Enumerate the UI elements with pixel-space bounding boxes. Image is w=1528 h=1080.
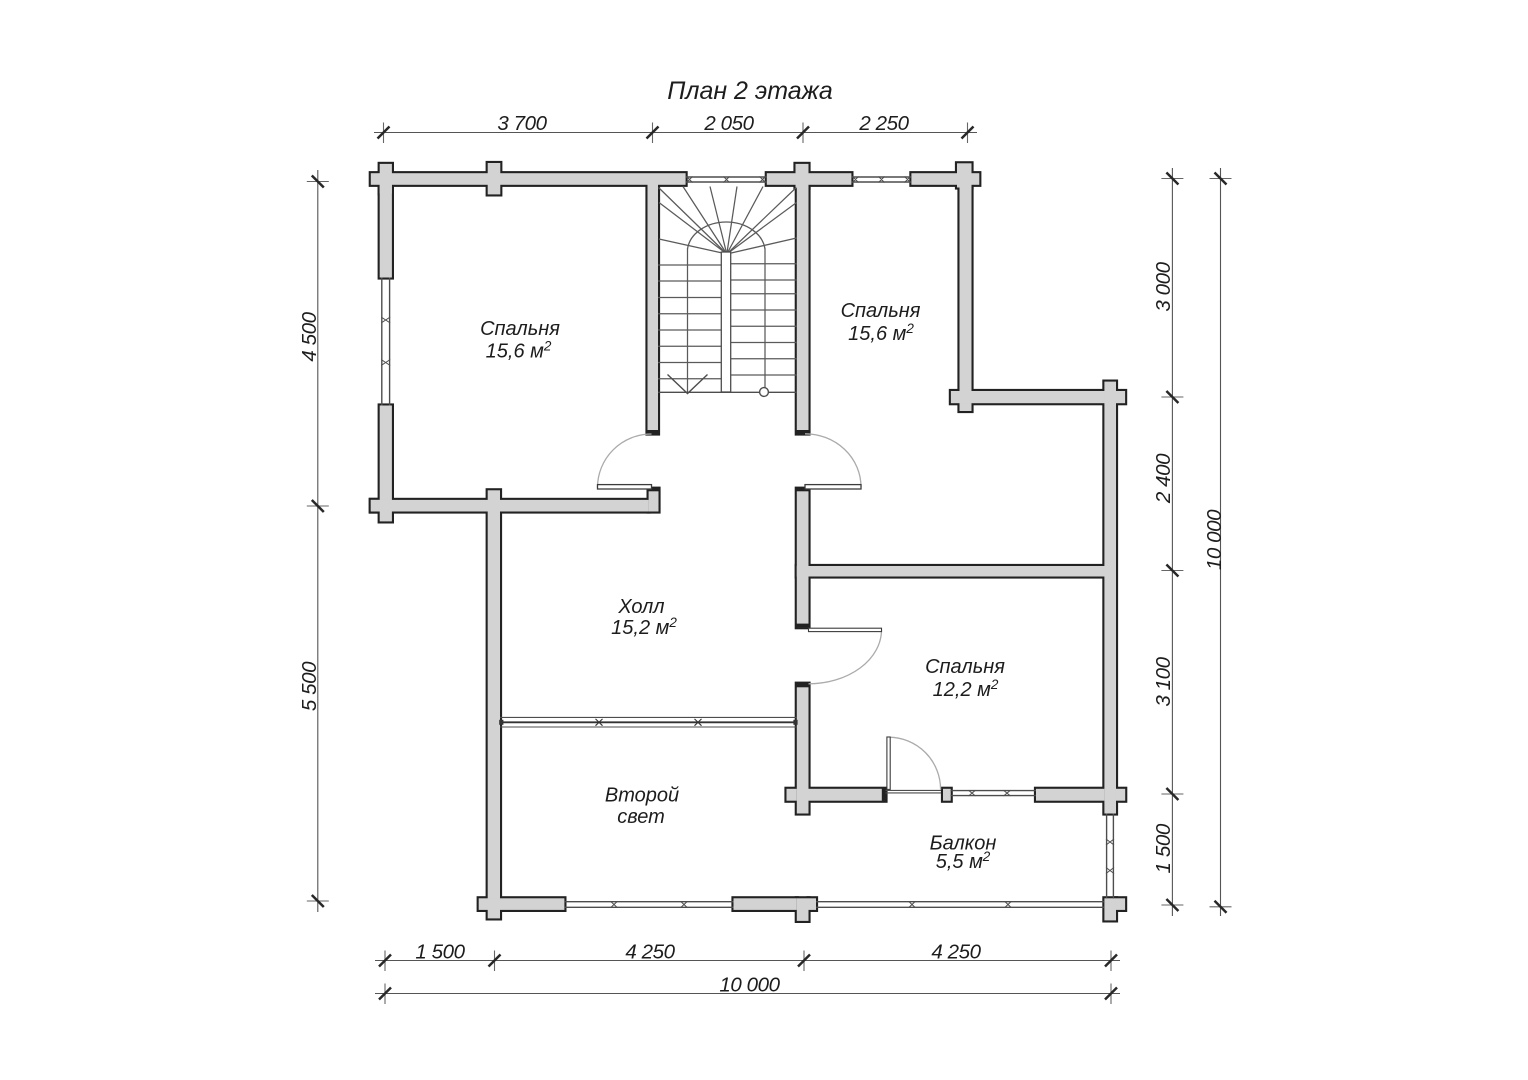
- svg-text:3 000: 3 000: [1152, 261, 1175, 311]
- svg-text:4 500: 4 500: [298, 311, 321, 361]
- svg-text:Холл: Холл: [617, 596, 664, 618]
- svg-text:Спальня: Спальня: [841, 300, 921, 322]
- svg-text:10 000: 10 000: [719, 973, 780, 996]
- svg-text:15,2 м2: 15,2 м2: [611, 615, 677, 639]
- svg-text:4 250: 4 250: [625, 941, 675, 964]
- svg-text:5,5 м2: 5,5 м2: [936, 849, 991, 873]
- svg-text:1 500: 1 500: [1152, 823, 1175, 873]
- svg-text:Спальня: Спальня: [925, 656, 1005, 678]
- svg-text:свет: свет: [617, 806, 665, 828]
- svg-text:4 250: 4 250: [931, 941, 981, 964]
- svg-text:1 500: 1 500: [415, 941, 465, 964]
- svg-text:2 250: 2 250: [858, 112, 909, 135]
- svg-text:План 2 этажа: План 2 этажа: [667, 77, 833, 105]
- svg-text:3 100: 3 100: [1152, 656, 1175, 706]
- svg-text:12,2 м2: 12,2 м2: [933, 677, 999, 701]
- svg-text:5 500: 5 500: [298, 661, 321, 711]
- svg-text:2 400: 2 400: [1152, 453, 1175, 504]
- svg-text:15,6 м2: 15,6 м2: [848, 321, 914, 345]
- svg-text:Второй: Второй: [605, 785, 679, 807]
- svg-text:3 700: 3 700: [497, 112, 547, 135]
- svg-text:2 050: 2 050: [703, 112, 754, 135]
- svg-text:15,6 м2: 15,6 м2: [486, 339, 552, 363]
- svg-text:10 000: 10 000: [1203, 509, 1226, 570]
- svg-text:Спальня: Спальня: [480, 318, 560, 340]
